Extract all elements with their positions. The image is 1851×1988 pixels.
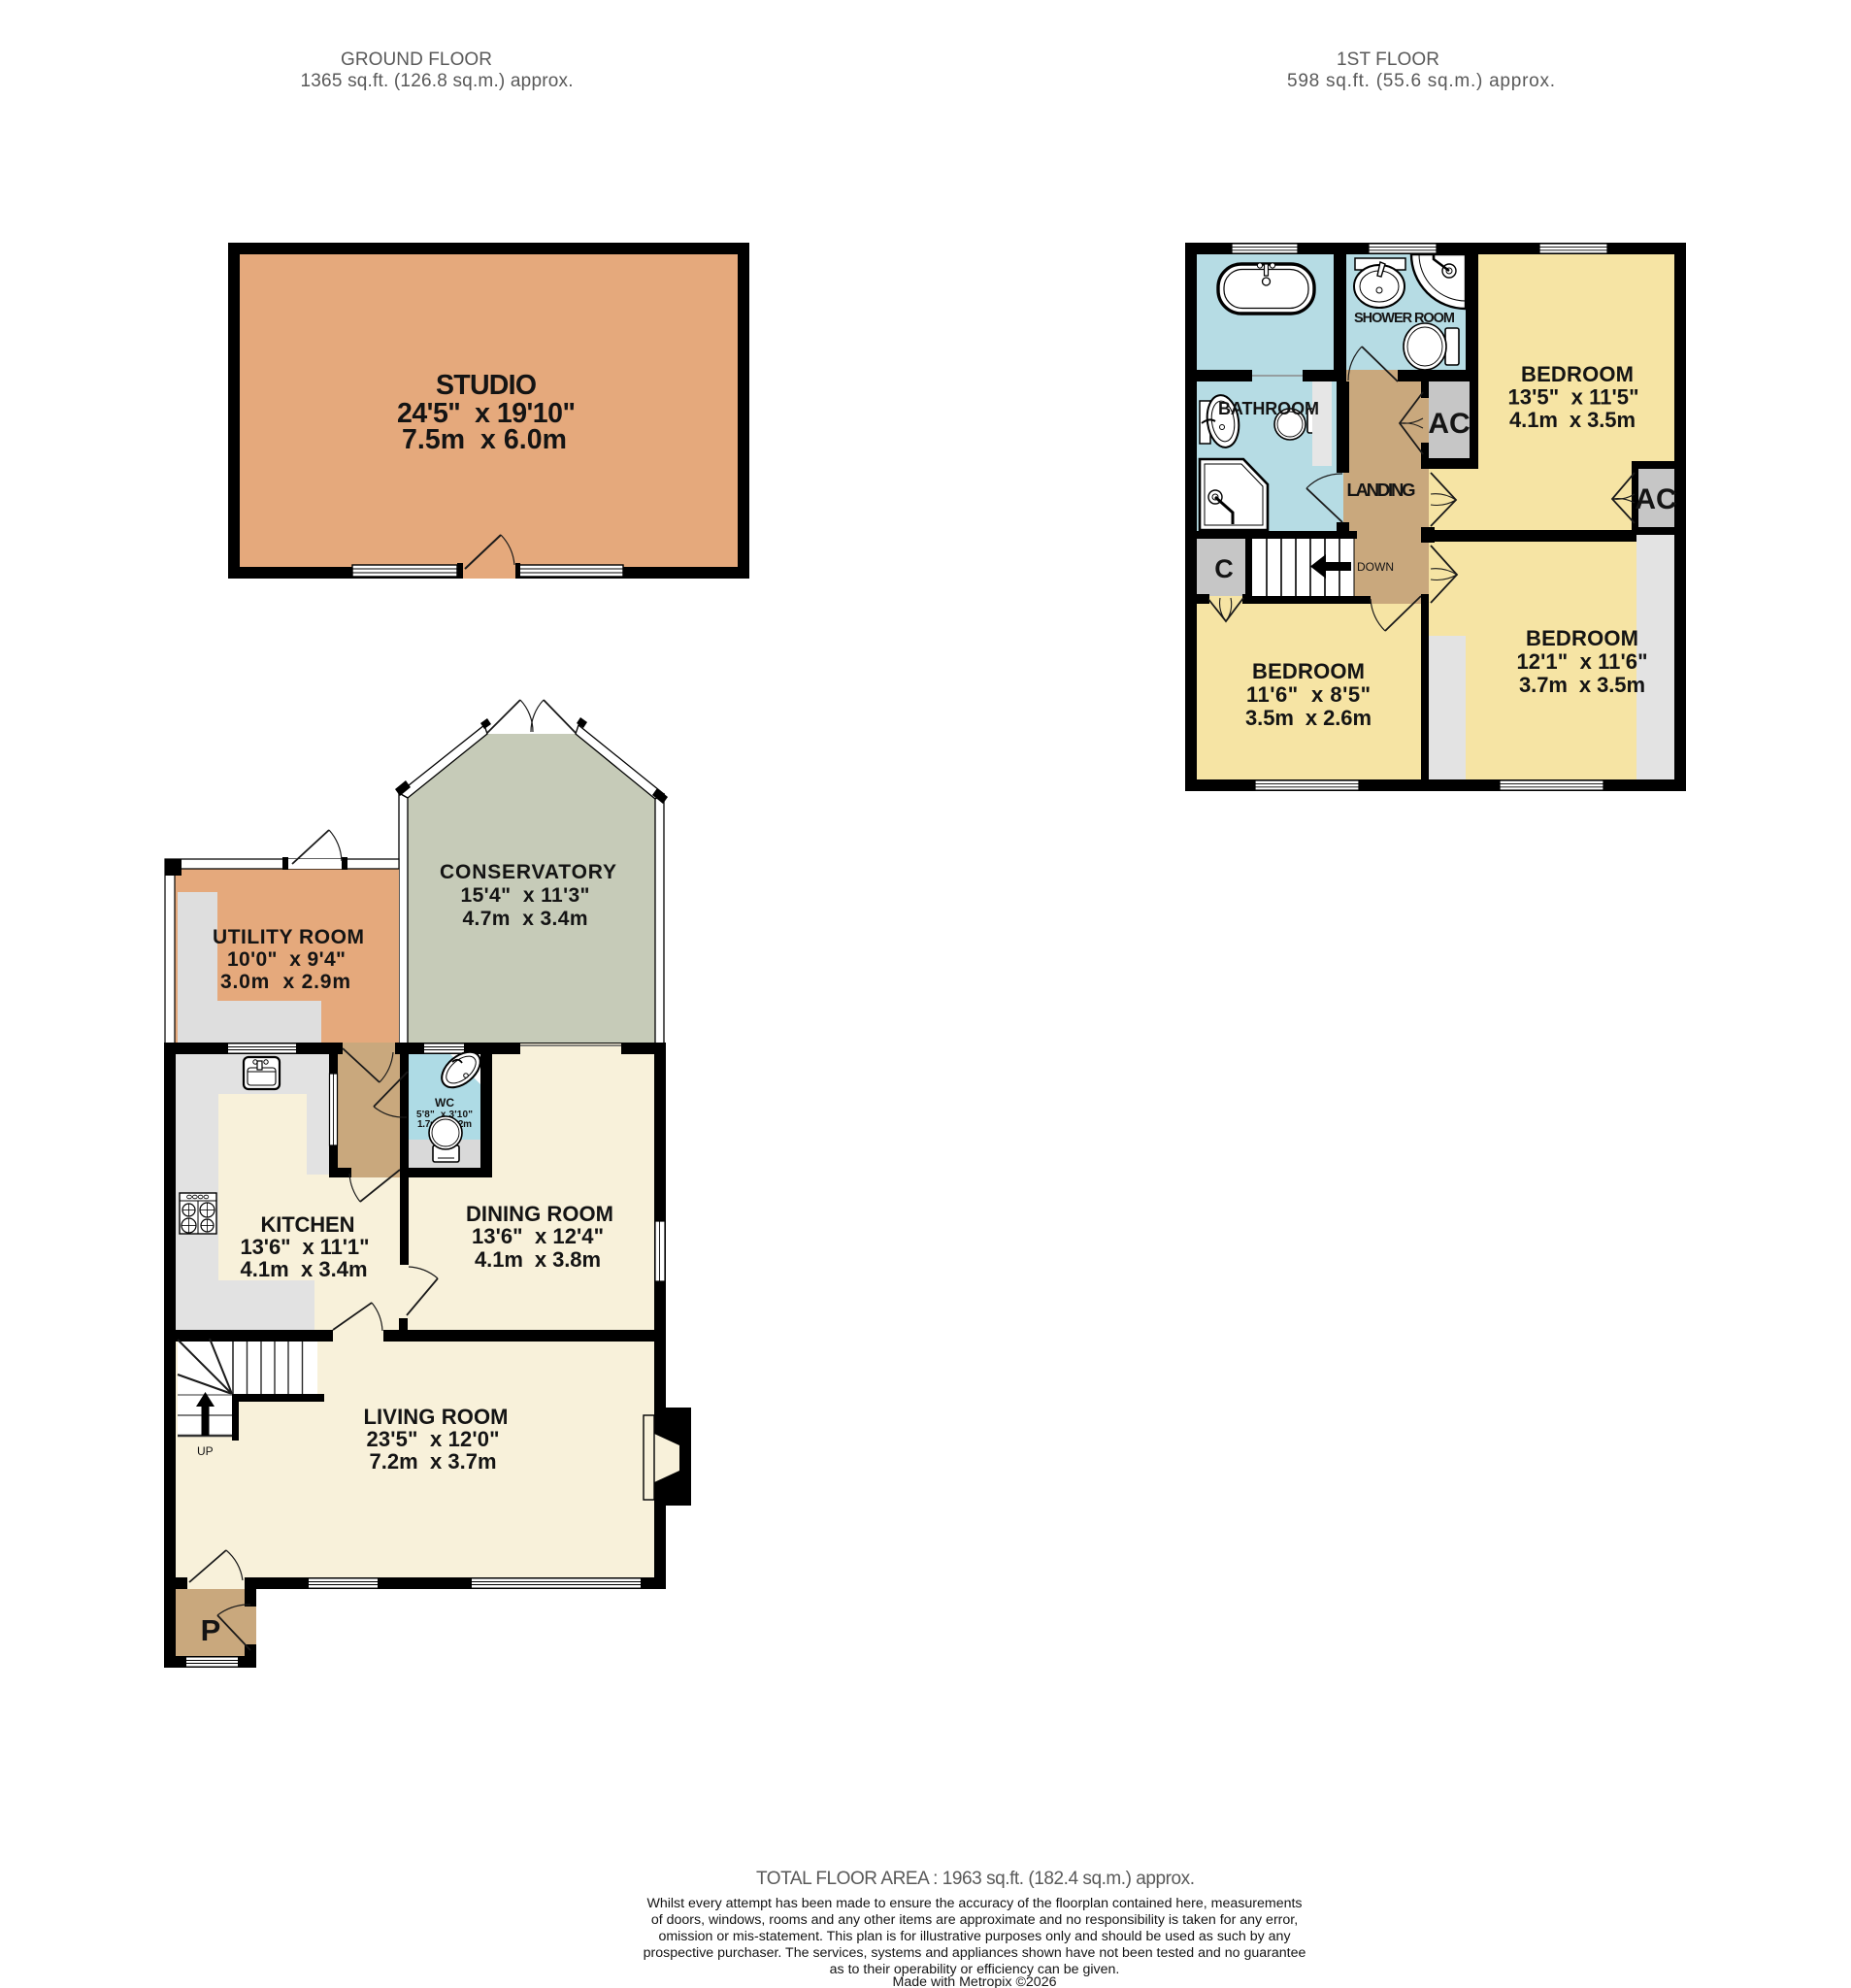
svg-text:of doors, windows, rooms and a: of doors, windows, rooms and any other i…: [651, 1912, 1298, 1928]
svg-text:4.1m x 3.4m: 4.1m x 3.4m: [241, 1257, 368, 1281]
svg-text:BEDROOM: BEDROOM: [1526, 626, 1638, 650]
svg-text:3.5m x 2.6m: 3.5m x 2.6m: [1245, 706, 1372, 730]
svg-text:LANDING: LANDING: [1347, 480, 1416, 500]
svg-text:13'6" x 12'4": 13'6" x 12'4": [472, 1224, 604, 1248]
svg-text:7.2m x 3.7m: 7.2m x 3.7m: [370, 1449, 497, 1474]
svg-text:WC: WC: [435, 1096, 454, 1110]
svg-text:4.1m x 3.8m: 4.1m x 3.8m: [475, 1247, 601, 1272]
svg-text:BEDROOM: BEDROOM: [1521, 362, 1634, 386]
svg-text:1ST FLOOR: 1ST FLOOR: [1337, 50, 1439, 70]
svg-text:SHOWER ROOM: SHOWER ROOM: [1354, 311, 1455, 326]
svg-text:prospective purchaser. The ser: prospective purchaser. The services, sys…: [644, 1945, 1306, 1961]
svg-text:15'4" x 11'3": 15'4" x 11'3": [461, 884, 590, 907]
svg-text:11'6" x 8'5": 11'6" x 8'5": [1246, 682, 1371, 707]
svg-text:12'1" x 11'6": 12'1" x 11'6": [1517, 649, 1648, 674]
svg-text:3.7m x 3.5m: 3.7m x 3.5m: [1519, 673, 1645, 697]
svg-text:598 sq.ft. (55.6 sq.m.) approx: 598 sq.ft. (55.6 sq.m.) approx.: [1287, 71, 1555, 91]
svg-text:omission or mis-statement. Thi: omission or mis-statement. This plan is …: [658, 1929, 1291, 1944]
svg-text:UTILITY ROOM: UTILITY ROOM: [213, 926, 364, 948]
svg-text:13'5" x 11'5": 13'5" x 11'5": [1508, 385, 1639, 410]
svg-text:10'0" x 9'4": 10'0" x 9'4": [227, 948, 346, 971]
svg-text:P: P: [201, 1613, 221, 1647]
svg-text:3.0m x 2.9m: 3.0m x 2.9m: [220, 971, 350, 993]
svg-text:TOTAL FLOOR AREA : 1963 sq.ft.: TOTAL FLOOR AREA : 1963 sq.ft. (182.4 sq…: [756, 1869, 1195, 1889]
svg-text:Made with Metropix ©2026: Made with Metropix ©2026: [893, 1974, 1057, 1988]
svg-text:1365 sq.ft. (126.8 sq.m.) appr: 1365 sq.ft. (126.8 sq.m.) approx.: [301, 71, 574, 91]
svg-text:DOWN: DOWN: [1357, 560, 1394, 574]
svg-text:7.5m x 6.0m: 7.5m x 6.0m: [402, 424, 567, 455]
svg-text:LIVING ROOM: LIVING ROOM: [364, 1405, 509, 1429]
svg-text:4.1m x 3.5m: 4.1m x 3.5m: [1509, 408, 1636, 432]
svg-text:KITCHEN: KITCHEN: [261, 1212, 355, 1237]
svg-text:AC: AC: [1428, 408, 1470, 440]
svg-text:4.7m x 3.4m: 4.7m x 3.4m: [463, 908, 588, 930]
svg-text:BATHROOM: BATHROOM: [1218, 399, 1319, 418]
svg-text:DINING ROOM: DINING ROOM: [466, 1202, 613, 1226]
svg-text:13'6" x 11'1": 13'6" x 11'1": [241, 1235, 370, 1259]
svg-text:UP: UP: [197, 1444, 214, 1458]
svg-text:C: C: [1214, 554, 1234, 583]
svg-text:CONSERVATORY: CONSERVATORY: [440, 861, 616, 883]
svg-text:AC: AC: [1635, 483, 1676, 515]
svg-text:STUDIO: STUDIO: [436, 370, 537, 401]
svg-text:BEDROOM: BEDROOM: [1252, 659, 1365, 683]
svg-text:23'5" x 12'0": 23'5" x 12'0": [367, 1427, 500, 1451]
svg-text:Whilst every attempt has been: Whilst every attempt has been made to en…: [646, 1896, 1302, 1911]
svg-text:GROUND FLOOR: GROUND FLOOR: [341, 50, 492, 70]
